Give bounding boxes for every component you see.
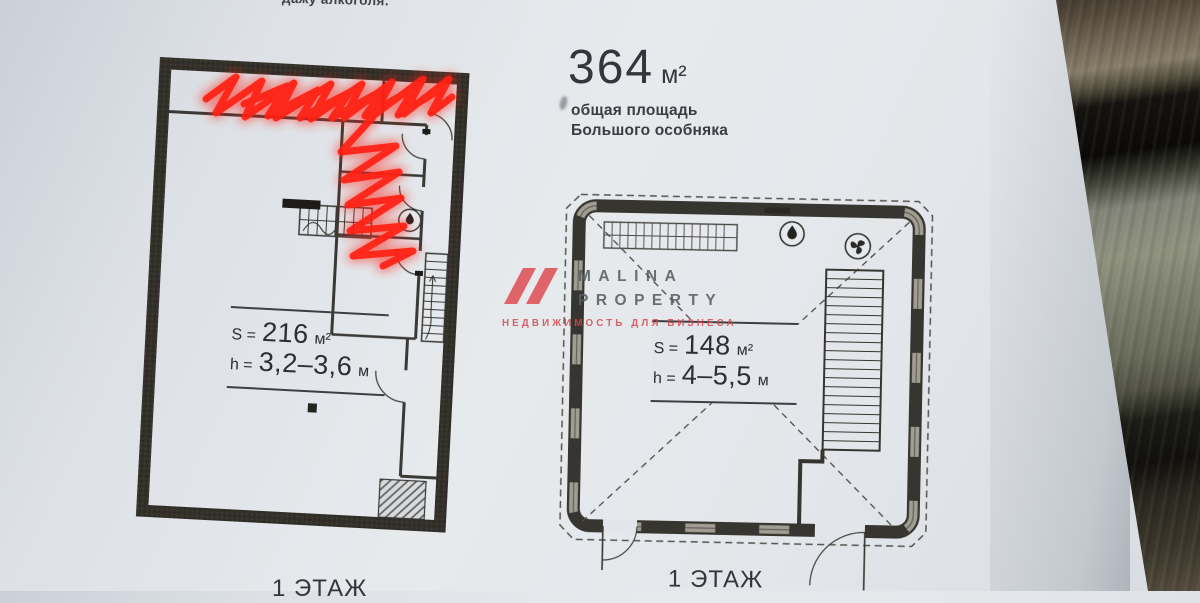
floor-label-right: 1 ЭТАЖ — [668, 566, 764, 595]
watermark-brand: MALINA PROPERTY — [578, 265, 723, 313]
total-area-caption: общая площадь Большого особняка — [571, 101, 728, 142]
watermark: MALINA PROPERTY НЕДВИЖИМОСТЬ ДЛЯ БИЗНЕСА — [502, 264, 742, 329]
total-area-caption-line2: Большого особняка — [571, 121, 728, 141]
malina-logo-icon — [502, 264, 568, 306]
watermark-tagline: НЕДВИЖИМОСТЬ ДЛЯ БИЗНЕСА — [502, 318, 742, 329]
total-area-heading: 364м² — [568, 40, 687, 95]
watermark-brand-bottom: PROPERTY — [578, 289, 723, 313]
total-area-value: 364 — [568, 41, 654, 94]
total-area-caption-line1: общая площадь — [571, 101, 728, 121]
document-photo: { "document": { "top_note": "дажу алкого… — [0, 0, 1200, 591]
watermark-brand-top: MALINA — [578, 265, 723, 289]
total-area-unit: м² — [661, 61, 687, 89]
floor-label-left: 1 ЭТАЖ — [272, 575, 367, 603]
